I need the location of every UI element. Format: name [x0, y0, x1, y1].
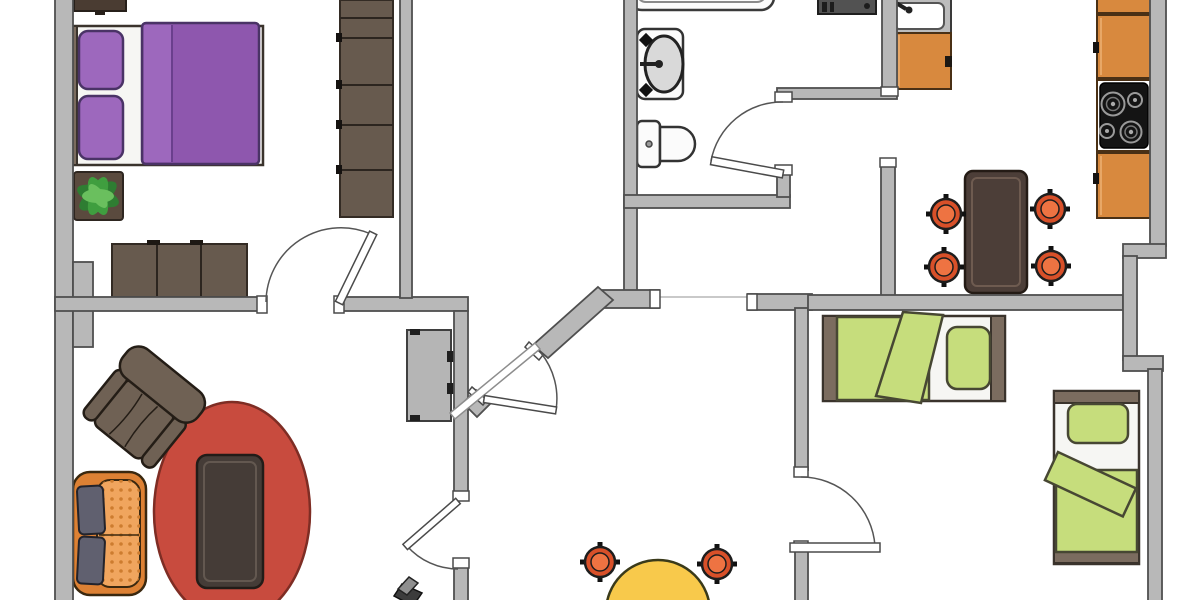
wall-kitchen-west-upper: [882, 0, 897, 92]
pillow: [79, 31, 123, 89]
wall-kitchen-west-lower: [881, 166, 895, 308]
wall-bedroom-east: [400, 0, 412, 298]
toilet: [637, 121, 695, 167]
wardrobe: [336, 0, 393, 217]
wall-kids-north: [808, 295, 1123, 310]
wall-kids-west-lower: [795, 549, 808, 600]
wall-vestibule-east: [624, 0, 637, 298]
wall-corridor-north: [777, 88, 897, 99]
wall-bedroom-south-west: [55, 297, 266, 311]
coffee-table: [197, 455, 263, 588]
sofa-cushion: [77, 485, 105, 534]
wall-bedroom-south-east: [337, 297, 468, 311]
wall-kids-west-upper: [795, 308, 808, 470]
pillow: [79, 96, 123, 159]
floor-plan: [0, 0, 1200, 600]
washbasin: [637, 29, 683, 99]
wall-bathroom-south: [624, 195, 790, 208]
stove: [1097, 80, 1151, 151]
chest-of-drawers: [112, 240, 247, 297]
double-bed: [67, 23, 263, 165]
console: [407, 329, 455, 421]
single-bed-vertical: [1045, 391, 1139, 564]
single-bed-horizontal: [823, 312, 1005, 403]
sofa-cushion: [77, 536, 105, 584]
washing-machine: [818, 0, 876, 14]
wall-right-lower: [1148, 369, 1162, 600]
sofa: [73, 472, 146, 595]
dining-table: [965, 171, 1027, 293]
kitchen-base-cabinet: [893, 33, 952, 89]
plant: [74, 172, 123, 220]
pillow: [947, 327, 990, 389]
bathtub: [629, 0, 774, 10]
pillow: [1068, 404, 1128, 443]
floor-plan-canvas: [0, 0, 1200, 600]
wall-hall-west-lower: [454, 567, 468, 600]
wall-right-upper: [1150, 0, 1166, 246]
wall-right-mid: [1123, 256, 1137, 360]
